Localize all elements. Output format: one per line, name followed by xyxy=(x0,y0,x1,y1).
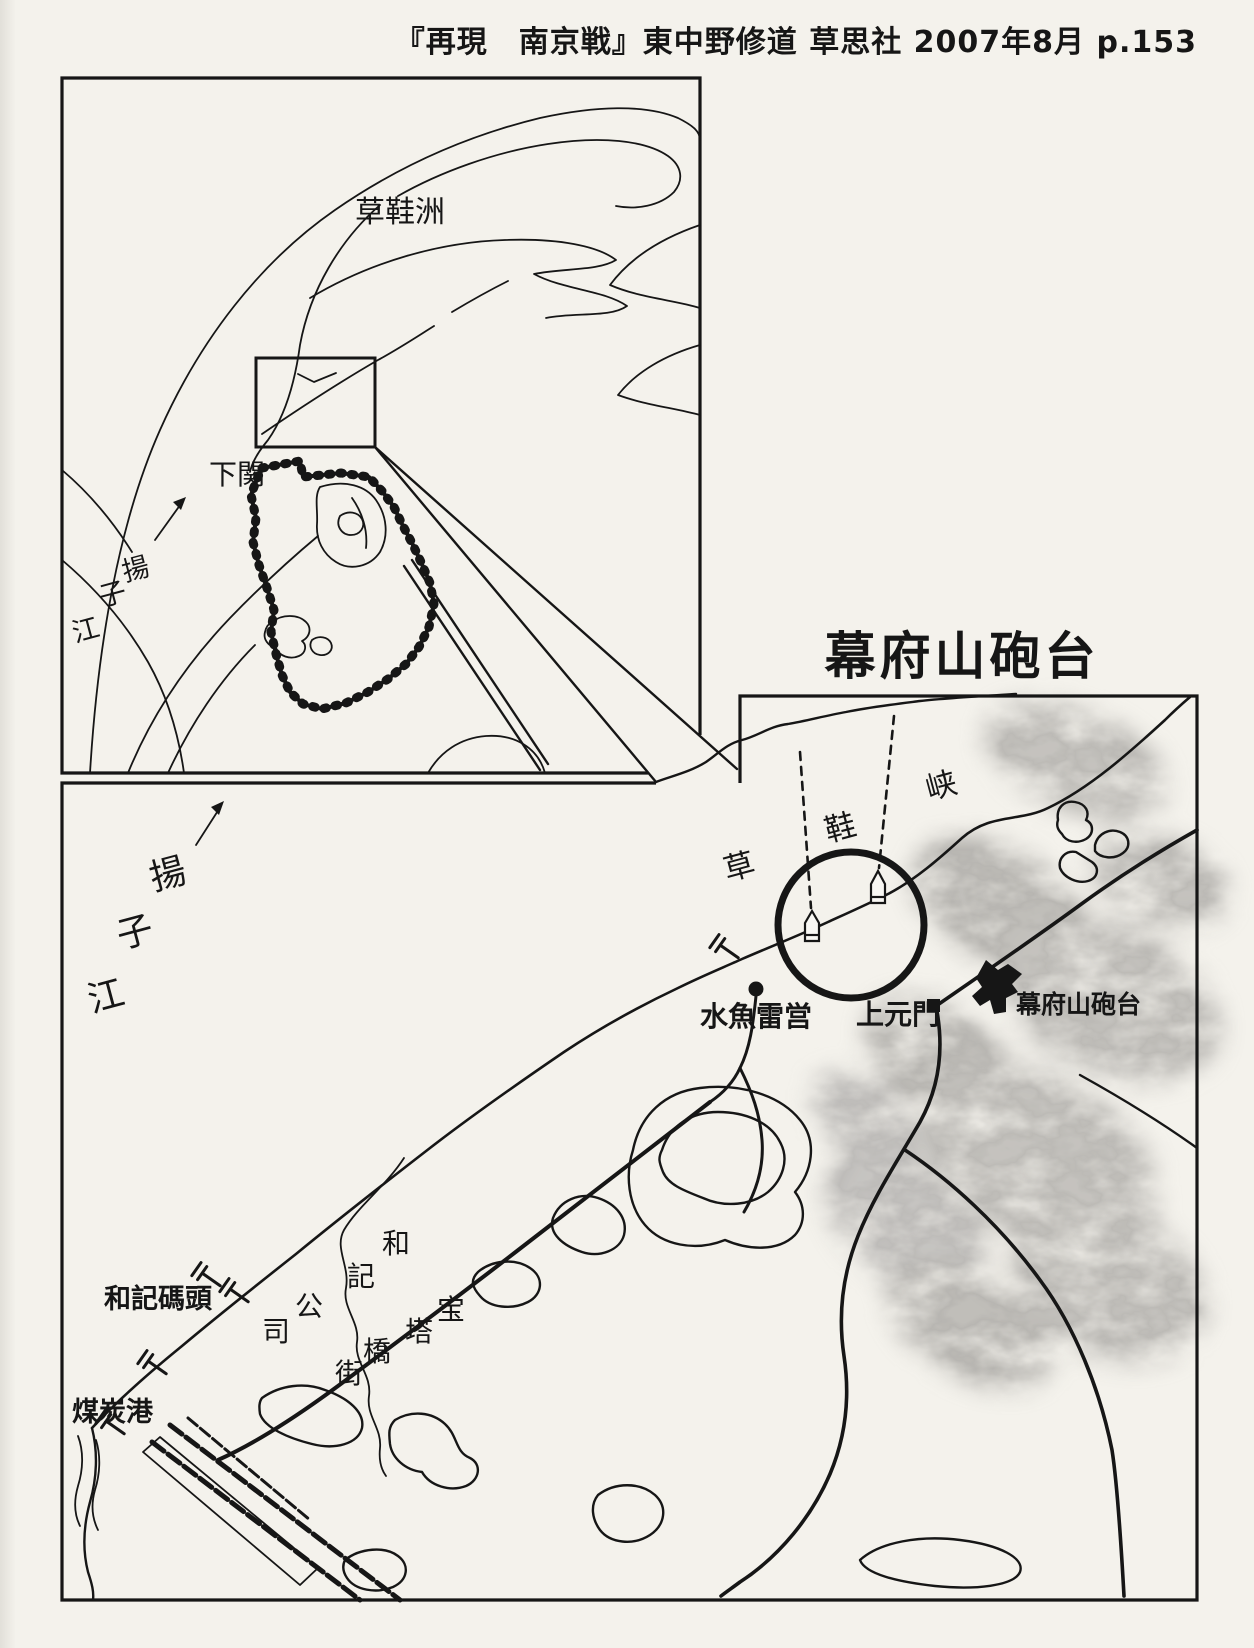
battery-label: 幕府山砲台 xyxy=(1015,990,1141,1019)
wall-inner-pocket xyxy=(317,484,386,567)
yangtze-label-main: 揚 子 江 xyxy=(83,850,190,1021)
street-char-1: 塔 xyxy=(405,1315,433,1348)
yangtze-main-char-1: 子 xyxy=(112,908,157,957)
ship-icon-2 xyxy=(871,871,885,903)
street-char-3: 街 xyxy=(335,1357,363,1390)
railway-yard-outline xyxy=(143,1437,318,1585)
wharf-label: 和記碼頭 xyxy=(104,1283,213,1315)
yangtze-inset-char-0: 揚 xyxy=(119,551,153,588)
projection-line-upper xyxy=(375,447,737,769)
torpedo-station-label: 水魚雷営 xyxy=(700,1000,812,1033)
torpedo-station-dot xyxy=(749,982,764,997)
north-bank xyxy=(656,694,1016,782)
street-char-2: 橋 xyxy=(363,1335,391,1368)
yangtze-label-inset: 揚 子 江 xyxy=(69,551,153,649)
baotaqiao-street-road xyxy=(218,1102,710,1460)
creek xyxy=(341,1158,404,1476)
flow-arrow-inset xyxy=(155,497,186,540)
yangtze-inset-char-2: 江 xyxy=(69,612,103,649)
caoxiezhou-label: 草鞋洲 xyxy=(355,195,445,230)
company-char-3: 司 xyxy=(262,1315,290,1348)
coal-port-railway xyxy=(143,1418,400,1600)
inlet-line-1 xyxy=(75,1436,82,1526)
inset-map-border xyxy=(62,78,700,773)
scanned-book-page: 『再現 南京戦』東中野修道 草思社 2007年8月 p.153 xyxy=(0,0,1254,1648)
company-char-2: 公 xyxy=(295,1290,323,1323)
company-label: 和 記 公 司 xyxy=(262,1227,410,1348)
gorge-char-1: 鞋 xyxy=(821,807,860,850)
left-shore-lower xyxy=(84,1428,96,1600)
mountain-shading xyxy=(794,680,1244,1413)
shangyuanmen-label: 上元門 xyxy=(856,998,940,1031)
yangtze-main-char-2: 江 xyxy=(83,972,128,1021)
city-wall xyxy=(251,461,434,709)
company-char-0: 和 xyxy=(382,1227,410,1260)
railway-track-2 xyxy=(152,1442,360,1600)
flow-arrow-main xyxy=(196,801,224,845)
ship-icon-1 xyxy=(805,911,819,941)
gorge-char-0: 草 xyxy=(720,846,759,889)
source-caption: 『再現 南京戦』東中野修道 草思社 2007年8月 p.153 xyxy=(395,25,1197,60)
xiaguan-label: 下関 xyxy=(209,458,265,491)
inset-railway xyxy=(404,560,548,770)
inset-map: 草鞋洲 下関 揚 子 江 xyxy=(62,78,737,782)
pier-icon-mid xyxy=(138,1351,171,1381)
railway-track-1 xyxy=(170,1425,400,1600)
ships-highlight-circle xyxy=(778,852,924,998)
coal-port-label: 煤炭港 xyxy=(72,1397,154,1428)
yangtze-main-char-0: 揚 xyxy=(145,850,190,899)
main-map-title: 幕府山砲台 xyxy=(823,628,1099,687)
company-char-1: 記 xyxy=(347,1260,375,1293)
street-char-0: 宝 xyxy=(437,1293,465,1326)
gorge-char-2: 峡 xyxy=(922,765,961,808)
